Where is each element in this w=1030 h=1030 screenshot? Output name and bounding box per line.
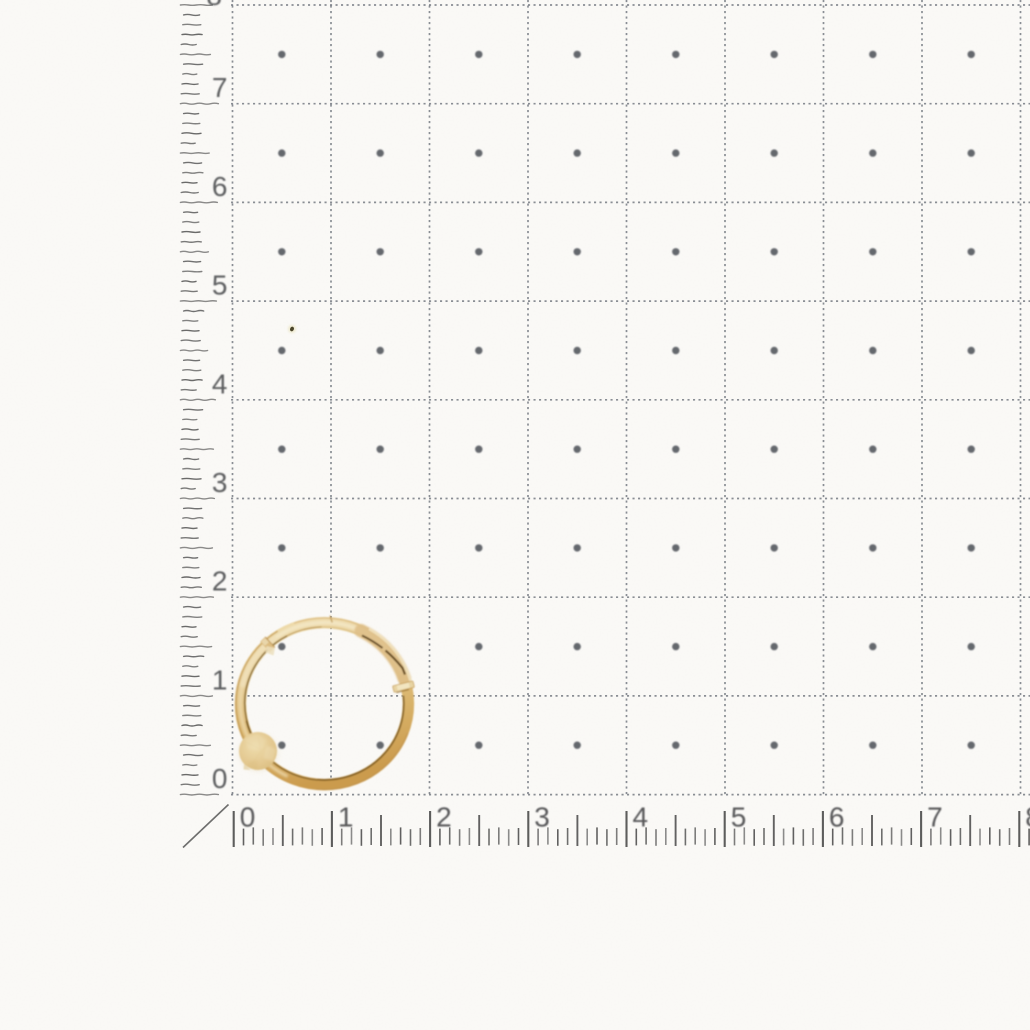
svg-text:2: 2 [212, 566, 228, 597]
svg-text:4: 4 [212, 368, 228, 399]
svg-text:0: 0 [212, 763, 228, 794]
svg-text:0: 0 [240, 802, 256, 833]
svg-text:3: 3 [534, 802, 550, 833]
svg-text:6: 6 [829, 802, 845, 833]
svg-text:2: 2 [436, 802, 452, 833]
svg-text:5: 5 [212, 270, 228, 301]
svg-text:3: 3 [212, 467, 228, 498]
svg-text:7: 7 [212, 72, 228, 103]
svg-text:6: 6 [212, 171, 228, 202]
svg-text:4: 4 [633, 802, 649, 833]
svg-text:5: 5 [731, 802, 747, 833]
svg-text:1: 1 [212, 664, 228, 695]
svg-text:8: 8 [206, 0, 222, 11]
svg-text:8: 8 [1025, 802, 1030, 833]
svg-text:7: 7 [927, 802, 943, 833]
svg-text:1: 1 [338, 802, 354, 833]
